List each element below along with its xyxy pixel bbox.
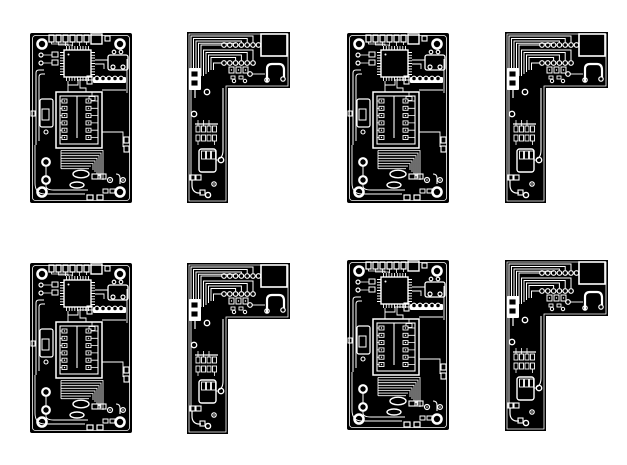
rectangular-pcb-board [347,33,449,203]
l-shaped-pcb-board [505,32,608,203]
rectangular-pcb-board [347,260,449,430]
pcb-panel-canvas [0,0,627,465]
rectangular-pcb-board [30,33,132,203]
boards-layer [30,32,608,434]
l-shaped-pcb-board [505,260,608,431]
rectangular-pcb-board [30,263,132,433]
pcb-panel-artwork [0,0,627,465]
l-shaped-pcb-board [187,263,290,434]
l-shaped-pcb-board [187,32,290,203]
pcb-artwork-page: { "page": { "width": 627, "height": 465,… [0,0,627,465]
